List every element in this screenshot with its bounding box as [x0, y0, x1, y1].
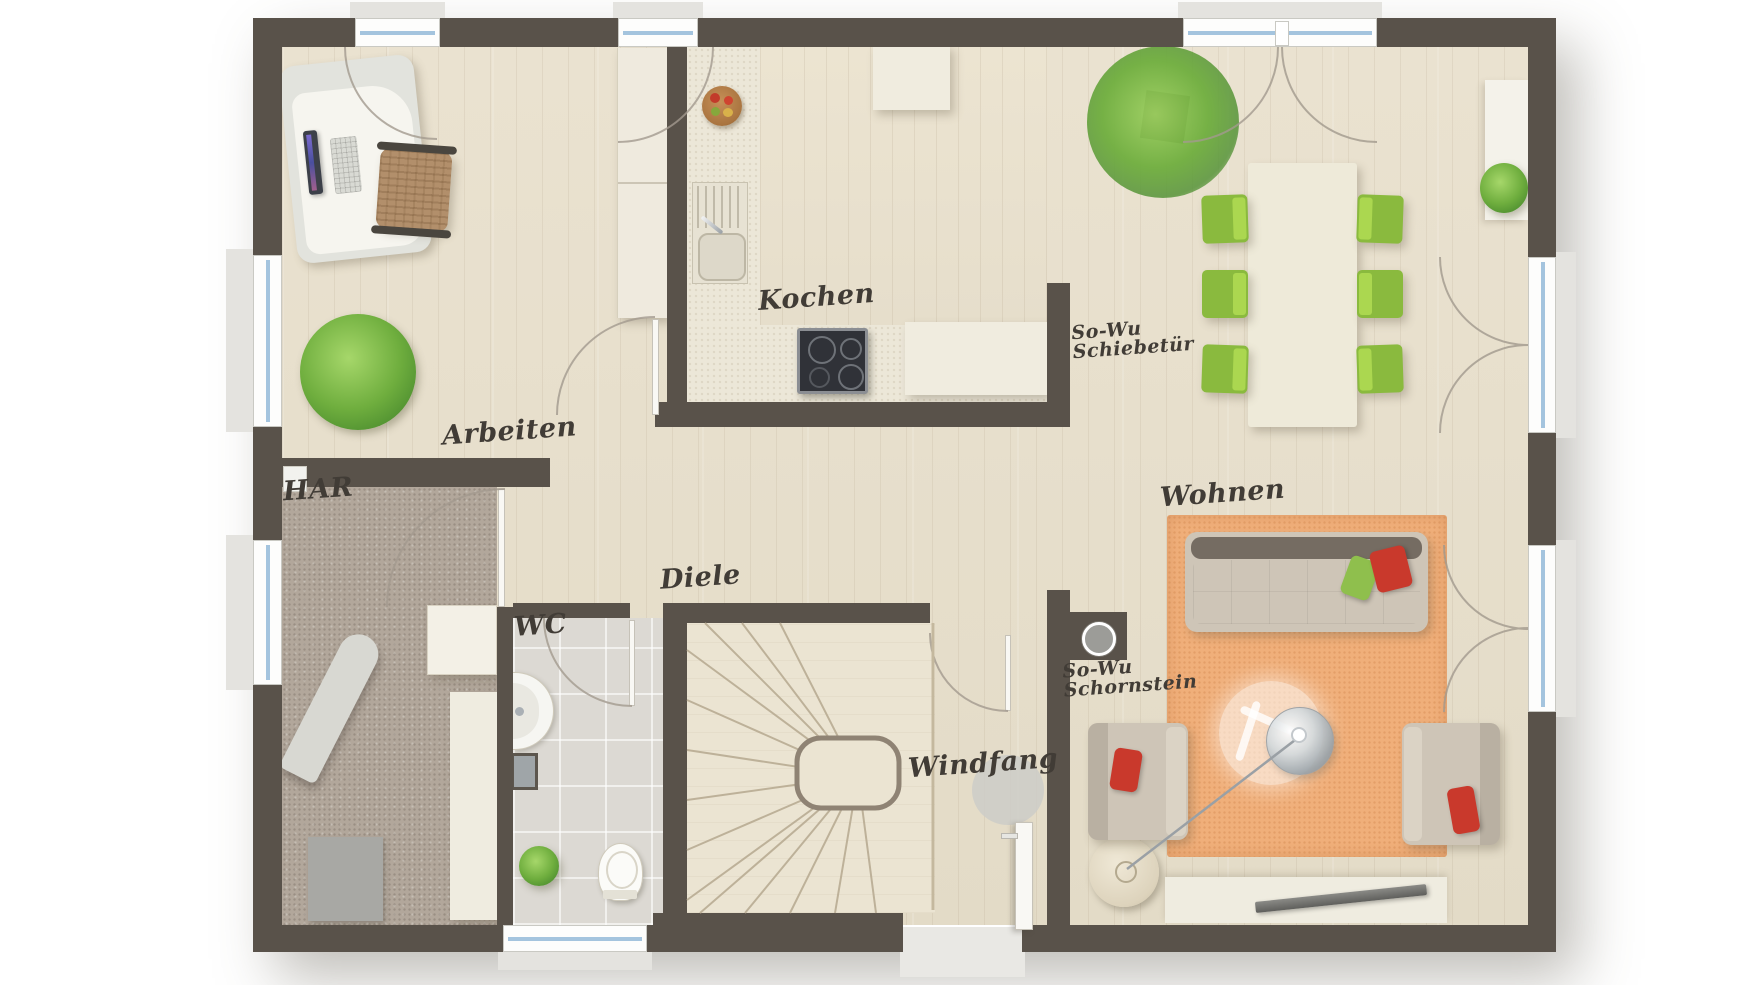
floor-stairs: [687, 623, 935, 913]
coffee-table-glass: [1266, 707, 1334, 775]
wall: [653, 913, 903, 927]
wall: [1528, 18, 1556, 257]
wall: [440, 18, 618, 47]
armchair-pillow-red: [1109, 747, 1143, 793]
entry-threshold: [900, 927, 1025, 977]
wall-wc-right: [663, 603, 687, 925]
dining-chair: [1356, 194, 1404, 244]
toilet-cistern: [603, 890, 637, 899]
window-top-kitchen: [618, 18, 698, 47]
wall: [698, 18, 1183, 47]
armchair-left: [1088, 723, 1188, 840]
french-door-upper: [1528, 257, 1556, 433]
wc-plant: [519, 846, 559, 886]
dining-chair: [1202, 270, 1248, 318]
armchair-pillow-red: [1446, 785, 1481, 835]
wall: [253, 427, 282, 540]
armchair-back: [1088, 723, 1108, 840]
cabinet-divider: [618, 182, 668, 184]
wall: [253, 18, 355, 47]
floor-plan: Kochen Arbeiten HAR WC Diele Windfang Wo…: [0, 0, 1752, 985]
room-label-diele: Diele: [659, 559, 742, 596]
chair-seat-edge: [1358, 348, 1372, 390]
chair-seat-edge: [1233, 273, 1246, 315]
window-left-har: [253, 540, 282, 685]
window-sill: [1178, 2, 1382, 18]
wall-kitchen-office: [667, 47, 687, 427]
window-glass: [508, 937, 642, 941]
fruit-green: [711, 107, 720, 116]
kitchen-peninsula: [905, 322, 1047, 395]
burner-3: [809, 367, 830, 388]
burner-1: [808, 336, 836, 364]
burner-4: [838, 364, 864, 390]
cooktop: [797, 328, 868, 394]
har-cabinet: [450, 692, 498, 920]
har-door-leaf: [498, 489, 505, 607]
dining-table: [1248, 163, 1357, 427]
window-glass: [266, 260, 270, 422]
har-appliance: [427, 605, 497, 675]
armchair-footrest: [1404, 727, 1422, 841]
wc-mirror: [511, 753, 538, 790]
annotation-schiebetuer: So-Wu Schiebetür: [1071, 316, 1195, 362]
window-sill: [498, 952, 652, 970]
keyboard: [330, 136, 363, 195]
window-glass: [1541, 262, 1545, 428]
har-mat: [308, 837, 383, 921]
dining-plant: [1087, 46, 1239, 198]
window-glass: [1541, 550, 1545, 707]
wall: [253, 925, 503, 952]
office-tall-cabinet: [617, 48, 668, 318]
window-glass: [360, 31, 435, 35]
window-sill: [613, 2, 703, 18]
dining-chair: [1201, 344, 1249, 394]
french-door-lower: [1528, 545, 1556, 712]
wall: [1528, 712, 1556, 952]
office-plant: [300, 314, 416, 430]
wall-stairs-top: [663, 603, 930, 623]
sideboard-object: [1255, 884, 1427, 913]
chair-seat-edge: [1358, 197, 1372, 239]
fruit-apple-red: [710, 93, 720, 103]
side-table: [1089, 837, 1159, 907]
washbasin-tap: [515, 707, 524, 716]
wall-kitchen-dining-stub: [1047, 283, 1070, 427]
arbeiten-door-leaf: [652, 319, 659, 415]
window-sill: [226, 535, 253, 690]
windfang-door-leaf: [1005, 635, 1011, 711]
window-sill: [350, 2, 445, 18]
window-wc: [503, 925, 647, 952]
room-label-har: HAR: [282, 472, 354, 508]
chair-seat-edge: [1232, 348, 1246, 390]
wall: [1528, 433, 1556, 545]
office-chair: [375, 148, 452, 233]
entry-door-handle: [1001, 833, 1018, 839]
sink-basin: [698, 233, 746, 281]
toilet-seat: [606, 851, 638, 889]
chair-seat-edge: [1359, 273, 1372, 315]
chair-seat-edge: [1232, 197, 1246, 239]
sofa: [1185, 532, 1428, 632]
wall-har-right: [497, 607, 513, 925]
wall-kitchen-hall: [655, 402, 1070, 427]
kitchen-sink-unit: [692, 182, 748, 284]
chimney-flue: [1082, 622, 1116, 656]
monitor-screen: [306, 135, 317, 191]
room-label-wc: WC: [513, 608, 568, 643]
window-sill: [226, 249, 253, 432]
armchair-back: [1480, 723, 1500, 845]
window-mullion: [1275, 21, 1289, 46]
annotation-schornstein: So-Wu Schornstein: [1062, 653, 1198, 699]
window-sill: [1556, 540, 1576, 717]
window-glass: [623, 31, 693, 35]
burner-2: [840, 338, 862, 360]
window-glass: [266, 545, 270, 680]
window-top-office: [355, 18, 440, 47]
armchair-right: [1402, 723, 1500, 845]
shelf-plant: [1480, 163, 1528, 213]
sideboard: [1165, 877, 1447, 923]
dining-chair: [1201, 194, 1249, 244]
wall: [253, 685, 282, 952]
fruit-bowl: [702, 86, 742, 126]
fruit-yellow: [723, 108, 733, 117]
wall: [253, 18, 282, 255]
dining-chair: [1357, 270, 1403, 318]
side-table-candle: [1115, 861, 1137, 883]
wc-door-leaf: [629, 620, 635, 706]
window-sill: [1556, 252, 1576, 438]
toilet: [598, 843, 643, 901]
wall: [1022, 925, 1556, 952]
kitchen-counter-top-block: [873, 45, 950, 110]
dining-chair: [1356, 344, 1404, 394]
armchair-footrest: [1166, 727, 1186, 836]
fruit-apple-red-2: [724, 96, 733, 105]
window-left-office: [253, 255, 282, 427]
wall: [647, 925, 903, 952]
window-top-dining: [1183, 18, 1377, 47]
